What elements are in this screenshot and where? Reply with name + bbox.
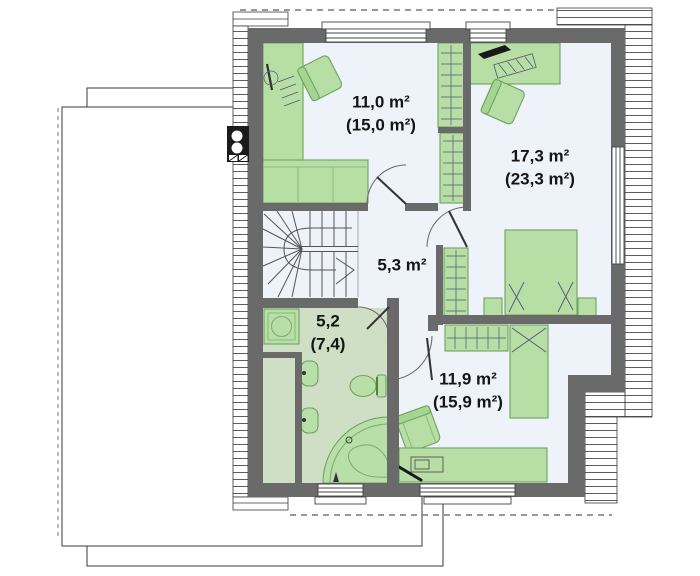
- room-area-gross: (15,9 m²): [433, 391, 503, 414]
- wall-bathroom-north: [261, 298, 358, 308]
- room-label-bedroom-top-left: 11,0 m² (15,0 m²): [346, 91, 416, 138]
- eave-band-right-lower: [585, 417, 617, 503]
- wall-bottom: [248, 483, 585, 497]
- nightstand: [484, 298, 502, 316]
- room-area: 11,9 m²: [433, 368, 503, 391]
- eave-band-step: [585, 392, 625, 417]
- wall-closet-north: [261, 352, 295, 358]
- nightstand: [578, 298, 596, 316]
- room-label-bedroom-bottom: 11,9 m² (15,9 m²): [433, 368, 503, 415]
- wall-left: [248, 28, 263, 497]
- room-label-hall: 5,3 m²: [377, 253, 426, 276]
- chimney: [227, 126, 249, 162]
- eave-band-top-right: [557, 8, 652, 25]
- window: [612, 147, 624, 264]
- window-sill: [322, 22, 430, 29]
- wall-top: [248, 28, 625, 43]
- room-area-gross: (7,4): [311, 333, 346, 356]
- washing-machine: [264, 309, 299, 344]
- wall-closet-partition: [295, 352, 302, 483]
- eave-band-right: [625, 25, 652, 417]
- room-label-bedroom-right: 17,3 m² (23,3 m²): [505, 145, 575, 192]
- floor-plan-page: { "plan": { "type": "attic-floor-plan", …: [0, 0, 700, 576]
- desk: [399, 448, 547, 482]
- wall-hall-north-b: [405, 203, 438, 211]
- window-sill: [315, 497, 366, 504]
- window-sill: [424, 497, 511, 504]
- wall-stub: [428, 324, 438, 331]
- toilet: [350, 375, 386, 397]
- sink: [301, 361, 318, 386]
- window: [318, 484, 363, 496]
- room-area: 5,3 m²: [377, 253, 426, 276]
- eave-board-bottom-left: [233, 497, 288, 510]
- window: [420, 484, 515, 496]
- floor-plan-drawing: [0, 0, 700, 576]
- window-sill: [466, 22, 510, 29]
- bed-double: [505, 230, 577, 315]
- wall-right-lower: [568, 375, 585, 497]
- wall-bathroom-east: [387, 298, 399, 483]
- bed-single: [510, 325, 548, 418]
- wall-bedroom-bottom-north: [428, 315, 612, 324]
- room-label-bathroom: 5,2 (7,4): [311, 310, 346, 357]
- desk: [263, 43, 303, 163]
- room-area-gross: (23,3 m²): [505, 168, 575, 191]
- room-area: 5,2: [311, 310, 346, 333]
- wall-hall-east: [436, 245, 443, 325]
- eave-band-left: [233, 26, 248, 497]
- room-area: 11,0 m²: [346, 91, 416, 114]
- wardrobe: [438, 43, 465, 127]
- sink: [301, 408, 318, 433]
- window: [470, 29, 506, 42]
- room-area-gross: (15,0 m²): [346, 114, 416, 137]
- desk: [468, 43, 560, 84]
- room-area: 17,3 m²: [505, 145, 575, 168]
- wall-bedrooms-divider: [463, 41, 471, 211]
- wall-stub: [438, 127, 465, 133]
- floor-closet: [261, 352, 295, 483]
- wall-hall-north-a: [261, 203, 368, 211]
- window: [326, 29, 426, 42]
